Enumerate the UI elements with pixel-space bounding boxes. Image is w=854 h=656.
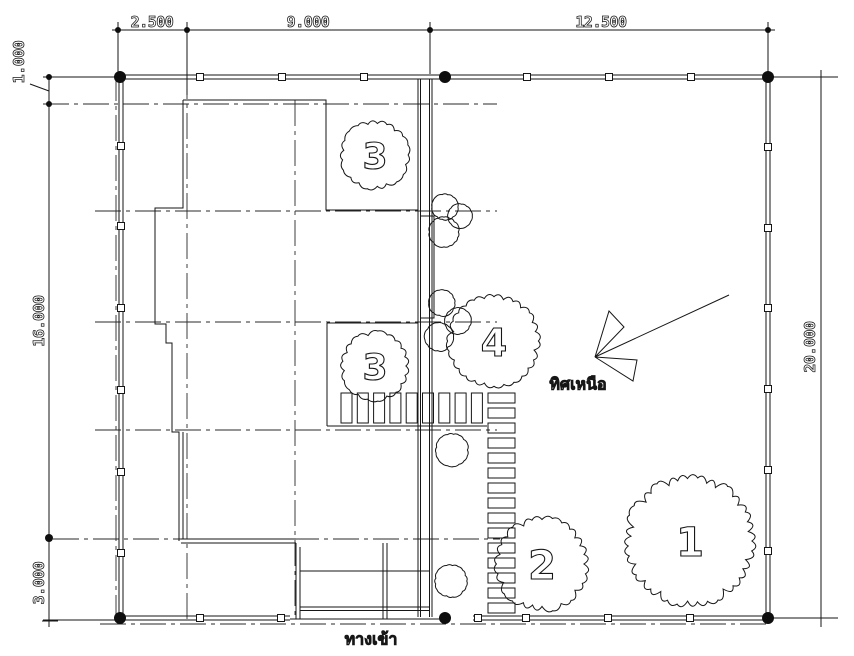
fence-post: [278, 615, 285, 622]
fence-post: [118, 550, 125, 557]
fence-bottom-left: [118, 615, 290, 622]
fence-post: [765, 225, 772, 232]
site-plan-drawing: 2.500 9.000 12.500 1.000 16.000 3.000 20…: [0, 0, 854, 656]
north-arrow: ทิศเหนือ: [549, 295, 729, 394]
boundary-marker-dot: [45, 534, 53, 542]
dimension-lines: 2.500 9.000 12.500 1.000 16.000 3.000 20…: [10, 13, 838, 627]
dim-line-left: [30, 75, 116, 627]
stepping-stone: [488, 558, 515, 568]
boundary-marker-dot: [114, 612, 126, 624]
paving-hatch-bar: [406, 393, 417, 423]
stepping-stone: [488, 438, 515, 448]
paving-hatch: [341, 393, 482, 423]
bush: [448, 204, 473, 229]
entrance-label: ทางเข้า: [345, 630, 398, 649]
north-arrow-line: [595, 295, 729, 357]
stepping-stone: [488, 423, 515, 433]
bush: [435, 565, 468, 598]
paving-hatch-bar: [390, 393, 401, 423]
tree-number: 3: [362, 348, 387, 389]
driveway-lines: [300, 543, 430, 619]
grid-lines: [43, 33, 770, 624]
stepping-stone: [488, 528, 515, 538]
fence-post: [606, 74, 613, 81]
boundary-marker-dot: [439, 71, 451, 83]
fence-post: [279, 74, 286, 81]
stepping-stone: [488, 393, 515, 403]
bush: [432, 194, 459, 221]
stepping-stones: [488, 393, 515, 613]
dim-label-1000: 1.000: [10, 40, 28, 83]
stepping-stone: [488, 603, 515, 613]
fence-post: [688, 74, 695, 81]
bush: [429, 217, 459, 248]
tree-number: 3: [362, 137, 387, 178]
stepping-stone: [488, 468, 515, 478]
paving-hatch-bar: [439, 393, 450, 423]
dim-label-3000: 3.000: [30, 561, 48, 604]
stepping-stone: [488, 483, 515, 493]
fence-post: [361, 74, 368, 81]
north-label: ทิศเหนือ: [549, 375, 606, 394]
dim-line-top: [112, 22, 775, 95]
fence-post: [118, 143, 125, 150]
fence-post: [118, 223, 125, 230]
fence-post: [687, 615, 694, 622]
paving-hatch-bar: [341, 393, 352, 423]
fence-post: [605, 615, 612, 622]
boundary-marker-dot: [114, 71, 126, 83]
fence-post: [118, 305, 125, 312]
stepping-stone: [488, 408, 515, 418]
dim-label-2500: 2.500: [131, 13, 174, 31]
fence-post: [765, 548, 772, 555]
paving-hatch-bar: [455, 393, 466, 423]
fence-right: [765, 75, 772, 620]
fence-post: [765, 467, 772, 474]
dimension-tick-dot: [46, 74, 52, 80]
boundary-marker-dot: [762, 71, 774, 83]
tree-number: 1: [676, 520, 704, 566]
fence-post: [118, 469, 125, 476]
bush: [429, 290, 455, 317]
paving-hatch-bar: [471, 393, 482, 423]
fence-post: [765, 144, 772, 151]
tree-number: 2: [528, 543, 556, 589]
stepping-stone: [488, 498, 515, 508]
dim-label-20000: 20.000: [801, 321, 819, 373]
fence-post: [197, 74, 204, 81]
site-plan-page: 2.500 9.000 12.500 1.000 16.000 3.000 20…: [0, 0, 854, 656]
fence-left: [118, 75, 125, 620]
fence-post: [197, 615, 204, 622]
markers: [45, 27, 774, 624]
vegetation: 12334: [340, 121, 755, 612]
boundary-marker-dot: [762, 612, 774, 624]
building-bottom-block: [181, 539, 300, 619]
dimension-tick-dot: [46, 101, 52, 107]
boundary-marker-dot: [439, 612, 451, 624]
fence-post: [118, 387, 125, 394]
fence-post: [765, 386, 772, 393]
tree-number: 4: [481, 321, 507, 365]
fence-bottom-right: [473, 615, 770, 622]
paving-hatch-bar: [357, 393, 368, 423]
stepping-stone: [488, 573, 515, 583]
bush: [424, 322, 453, 351]
bush: [445, 308, 472, 335]
dim-label-16000: 16.000: [30, 295, 48, 347]
fence-post: [765, 305, 772, 312]
fence-post: [524, 74, 531, 81]
dimension-tick-dot: [765, 27, 771, 33]
building-left-stepped-edge: [155, 100, 183, 541]
dimension-tick-dot: [427, 27, 433, 33]
dimension-tick-dot: [115, 27, 121, 33]
stepping-stone: [488, 513, 515, 523]
fence-post: [523, 615, 530, 622]
building-outline: [155, 79, 487, 619]
dim-label-9000: 9.000: [287, 13, 330, 31]
dim-label-12500: 12.500: [575, 13, 627, 31]
fence-post: [475, 615, 482, 622]
stepping-stone: [488, 453, 515, 463]
paving-hatch-bar: [374, 393, 385, 423]
dimension-tick-dot: [184, 27, 190, 33]
bush: [435, 434, 468, 467]
